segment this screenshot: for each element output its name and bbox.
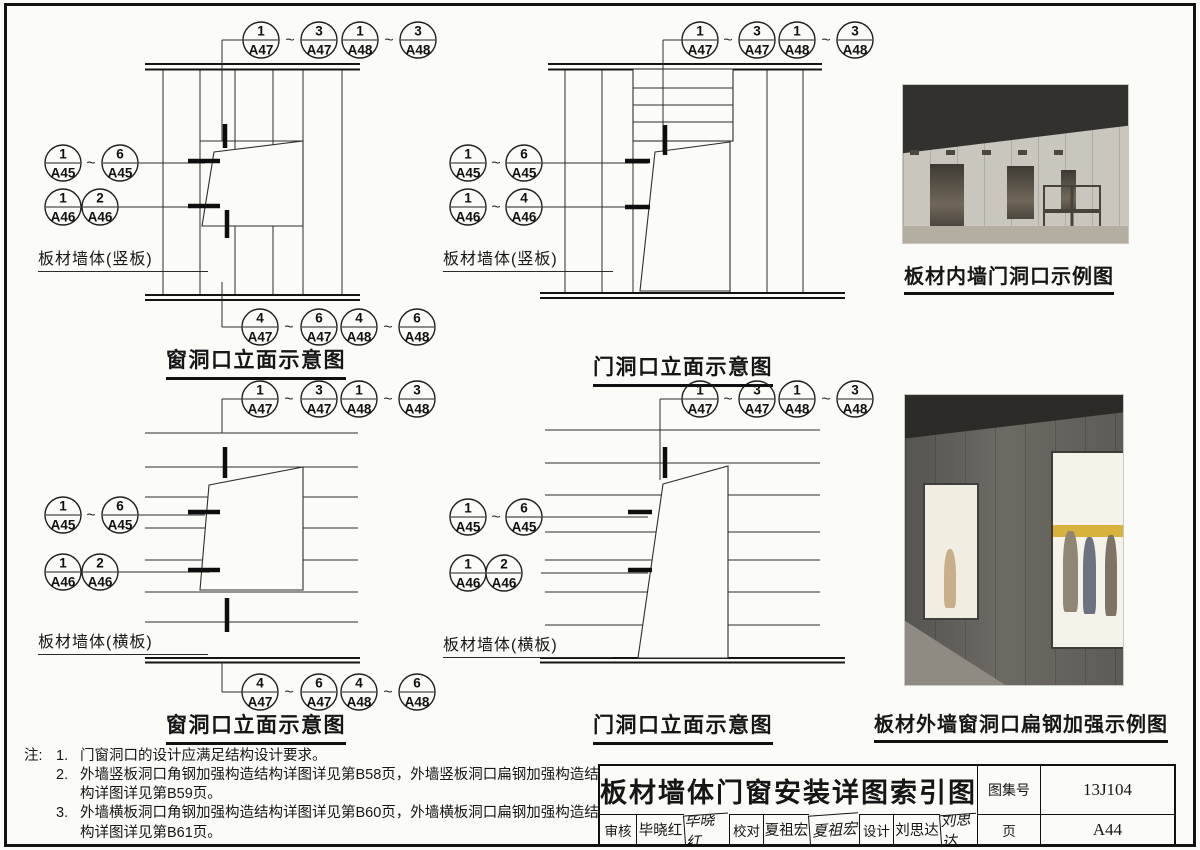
range-tilde: ~ [284, 684, 293, 701]
detail-callout: 4A48 [341, 309, 377, 345]
range-tilde: ~ [821, 32, 830, 49]
range-tilde: ~ [383, 684, 392, 701]
range-tilde: ~ [491, 509, 500, 526]
detail-callout: 6A48 [399, 674, 435, 710]
callout-sheet-number: A46 [492, 576, 517, 591]
callout-detail-number: 6 [116, 147, 124, 162]
notes-label: 注: [24, 747, 56, 843]
callout-detail-number: 3 [414, 24, 422, 39]
callout-sheet-number: A48 [785, 43, 810, 58]
range-tilde: ~ [86, 155, 95, 172]
door-opening [1007, 166, 1034, 220]
range-tilde: ~ [723, 32, 732, 49]
detail-callout: 2A46 [486, 555, 522, 591]
callout-detail-number: 2 [96, 191, 104, 206]
callout-detail-number: 1 [59, 556, 67, 571]
callout-detail-number: 1 [696, 24, 704, 39]
callout-sheet-number: A48 [843, 43, 868, 58]
callout-sheet-number: A47 [688, 402, 713, 417]
detail-callout: 1A45 [45, 497, 81, 533]
callout-detail-number: 3 [851, 383, 859, 398]
callout-detail-number: 1 [257, 24, 265, 39]
detail-callout: 6A45 [102, 145, 138, 181]
callout-sheet-number: A47 [745, 402, 770, 417]
callout-sheet-number: A47 [307, 695, 332, 710]
callout-detail-number: 3 [753, 24, 761, 39]
reviewer-name: 毕晓红 [636, 814, 684, 844]
callout-sheet-number: A45 [108, 166, 133, 181]
callout-sheet-number: A47 [249, 43, 274, 58]
detail-callout: 1A48 [341, 381, 377, 417]
callout-detail-number: 1 [256, 383, 264, 398]
diagram-window-vertical [118, 40, 360, 327]
atlas-number-label: 图集号 [977, 766, 1040, 814]
atlas-number-value: 13J104 [1040, 766, 1174, 814]
detail-callout: 6A47 [301, 309, 337, 345]
checker-label: 校对 [729, 814, 763, 844]
callout-sheet-number: A47 [745, 43, 770, 58]
diagram-title-door-vertical: 门洞口立面示意图 [593, 351, 773, 387]
callout-sheet-number: A45 [456, 166, 481, 181]
detail-callout: 3A48 [837, 22, 873, 58]
sheet-title: 板材墙体门窗安装详图索引图 [600, 766, 977, 814]
reviewer-signature: 毕晓红 [683, 812, 730, 845]
callout-sheet-number: A47 [307, 43, 332, 58]
diagram-title-window-vertical: 窗洞口立面示意图 [166, 344, 346, 380]
note-item: 2.外墙竖板洞口角钢加强构造结构详图详见第B58页，外墙竖板洞口扁钢加强构造结构… [56, 766, 602, 804]
detail-callout: 3A48 [399, 381, 435, 417]
detail-callout: 1A45 [450, 145, 486, 181]
callout-detail-number: 2 [500, 557, 508, 572]
window-opening-right [1053, 453, 1123, 647]
photo-exterior-window-reinforcement-example [905, 395, 1123, 685]
callout-sheet-number: A46 [512, 210, 537, 225]
range-tilde: ~ [383, 391, 392, 408]
callout-detail-number: 6 [116, 499, 124, 514]
detail-callout: 1A45 [45, 145, 81, 181]
callout-sheet-number: A46 [456, 210, 481, 225]
page-number: A44 [1040, 814, 1174, 844]
callout-detail-number: 6 [413, 676, 421, 691]
detail-callout: 1A45 [450, 499, 486, 535]
callout-detail-number: 1 [59, 147, 67, 162]
callout-sheet-number: A45 [108, 518, 133, 533]
notes-block: 注: 1.门窗洞口的设计应满足结构设计要求。 2.外墙竖板洞口角钢加强构造结构详… [24, 747, 602, 843]
callout-sheet-number: A48 [785, 402, 810, 417]
callout-sheet-number: A48 [347, 330, 372, 345]
callout-sheet-number: A46 [88, 210, 113, 225]
detail-callout: 2A46 [82, 554, 118, 590]
worker-figure [1083, 537, 1096, 615]
window-opening-left [925, 485, 977, 618]
detail-callout: 3A48 [400, 22, 436, 58]
diagram-title-door-horizontal: 门洞口立面示意图 [593, 709, 773, 745]
callout-sheet-number: A46 [88, 575, 113, 590]
detail-callout: 1A46 [450, 189, 486, 225]
door-opening [930, 164, 964, 226]
note-item: 3.外墙横板洞口角钢加强构造结构详图详见第B60页，外墙横板洞口扁钢加强构造结构… [56, 804, 602, 842]
designer-label: 设计 [859, 814, 893, 844]
detail-callout: 3A48 [837, 381, 873, 417]
callout-detail-number: 6 [315, 676, 323, 691]
callout-detail-number: 6 [520, 147, 528, 162]
callout-detail-number: 3 [851, 24, 859, 39]
panel-clip-marks [910, 150, 1072, 155]
callout-sheet-number: A48 [406, 43, 431, 58]
detail-callout: 1A46 [45, 189, 81, 225]
designer-name: 刘思达 [893, 814, 940, 844]
callout-detail-number: 4 [520, 191, 528, 206]
callout-detail-number: 1 [464, 501, 472, 516]
range-tilde: ~ [491, 155, 500, 172]
detail-callout: 6A45 [506, 145, 542, 181]
range-tilde: ~ [86, 507, 95, 524]
worker-figure [1105, 535, 1117, 617]
designer-signature: 刘思达 [939, 813, 978, 846]
callout-detail-number: 4 [256, 676, 264, 691]
checker-signature: 夏祖宏 [808, 812, 860, 845]
detail-callout: 3A47 [739, 22, 775, 58]
worker-figure [1063, 531, 1077, 613]
callout-sheet-number: A45 [512, 166, 537, 181]
detail-callout: 6A45 [506, 499, 542, 535]
range-tilde: ~ [723, 391, 732, 408]
callout-sheet-number: A48 [348, 43, 373, 58]
diagram-title-window-horizontal: 窗洞口立面示意图 [166, 709, 346, 745]
callout-sheet-number: A47 [307, 330, 332, 345]
callout-detail-number: 3 [315, 383, 323, 398]
wall-type-label: 板材墙体(横板) [443, 631, 613, 658]
callout-detail-number: 1 [355, 383, 363, 398]
detail-callout: 3A47 [301, 381, 337, 417]
callout-detail-number: 2 [96, 556, 104, 571]
callout-sheet-number: A48 [347, 695, 372, 710]
wall-type-label: 板材墙体(竖板) [443, 245, 613, 272]
callout-sheet-number: A45 [512, 520, 537, 535]
photo-caption-interior: 板材内墙门洞口示例图 [878, 260, 1140, 295]
callout-sheet-number: A45 [51, 166, 76, 181]
callout-sheet-number: A46 [456, 576, 481, 591]
callout-detail-number: 1 [464, 557, 472, 572]
wall-type-label: 板材墙体(竖板) [38, 245, 208, 272]
callout-sheet-number: A47 [248, 402, 273, 417]
callout-detail-number: 1 [793, 24, 801, 39]
checker-name: 夏祖宏 [763, 814, 809, 844]
callout-detail-number: 6 [413, 311, 421, 326]
callout-sheet-number: A48 [347, 402, 372, 417]
note-item: 1.门窗洞口的设计应满足结构设计要求。 [56, 747, 602, 766]
callout-sheet-number: A46 [51, 210, 76, 225]
callout-sheet-number: A48 [405, 330, 430, 345]
callout-detail-number: 1 [59, 499, 67, 514]
detail-callout: 6A45 [102, 497, 138, 533]
detail-callout: 2A46 [82, 189, 118, 225]
floor [903, 226, 1128, 243]
detail-callout: 4A48 [341, 674, 377, 710]
detail-callout: 1A48 [779, 22, 815, 58]
callout-sheet-number: A48 [405, 695, 430, 710]
callout-sheet-number: A48 [405, 402, 430, 417]
range-tilde: ~ [284, 391, 293, 408]
callout-detail-number: 4 [355, 311, 363, 326]
worker-figure [944, 549, 956, 608]
callout-detail-number: 1 [464, 191, 472, 206]
detail-callout: 6A48 [399, 309, 435, 345]
detail-callout: 1A46 [45, 554, 81, 590]
title-block: 板材墙体门窗安装详图索引图 图集号 13J104 审核 毕晓红 毕晓红 校对 夏… [598, 764, 1176, 846]
callout-detail-number: 1 [59, 191, 67, 206]
detail-callout: 1A47 [682, 22, 718, 58]
callout-sheet-number: A47 [688, 43, 713, 58]
detail-callout: 6A47 [301, 674, 337, 710]
wall-type-label: 板材墙体(横板) [38, 628, 208, 655]
range-tilde: ~ [284, 319, 293, 336]
callout-detail-number: 4 [355, 676, 363, 691]
callout-sheet-number: A47 [248, 330, 273, 345]
callout-detail-number: 6 [520, 501, 528, 516]
callout-sheet-number: A45 [456, 520, 481, 535]
page-label: 页 [977, 814, 1040, 844]
diagram-door-horizontal [540, 399, 845, 663]
range-tilde: ~ [821, 391, 830, 408]
callout-detail-number: 1 [356, 24, 364, 39]
callout-sheet-number: A45 [51, 518, 76, 533]
callout-detail-number: 4 [256, 311, 264, 326]
callout-sheet-number: A47 [307, 402, 332, 417]
photo-caption-exterior: 板材外墙窗洞口扁钢加强示例图 [856, 708, 1186, 743]
detail-callout: 1A46 [450, 555, 486, 591]
detail-callout: 1A48 [342, 22, 378, 58]
callout-detail-number: 1 [464, 147, 472, 162]
detail-callout: 4A47 [242, 309, 278, 345]
callout-detail-number: 6 [315, 311, 323, 326]
detail-callout: 1A47 [243, 22, 279, 58]
callout-detail-number: 1 [793, 383, 801, 398]
reviewer-label: 审核 [600, 814, 636, 844]
detail-callout: 1A47 [242, 381, 278, 417]
callout-sheet-number: A48 [843, 402, 868, 417]
callout-sheet-number: A47 [248, 695, 273, 710]
range-tilde: ~ [383, 319, 392, 336]
range-tilde: ~ [285, 32, 294, 49]
detail-callout: 4A47 [242, 674, 278, 710]
range-tilde: ~ [491, 199, 500, 216]
photo-interior-wall-door-example [903, 85, 1128, 243]
range-tilde: ~ [384, 32, 393, 49]
callout-detail-number: 3 [413, 383, 421, 398]
detail-callout: 1A48 [779, 381, 815, 417]
callout-detail-number: 3 [315, 24, 323, 39]
detail-callout: 3A47 [301, 22, 337, 58]
detail-callout: 4A46 [506, 189, 542, 225]
callout-sheet-number: A46 [51, 575, 76, 590]
